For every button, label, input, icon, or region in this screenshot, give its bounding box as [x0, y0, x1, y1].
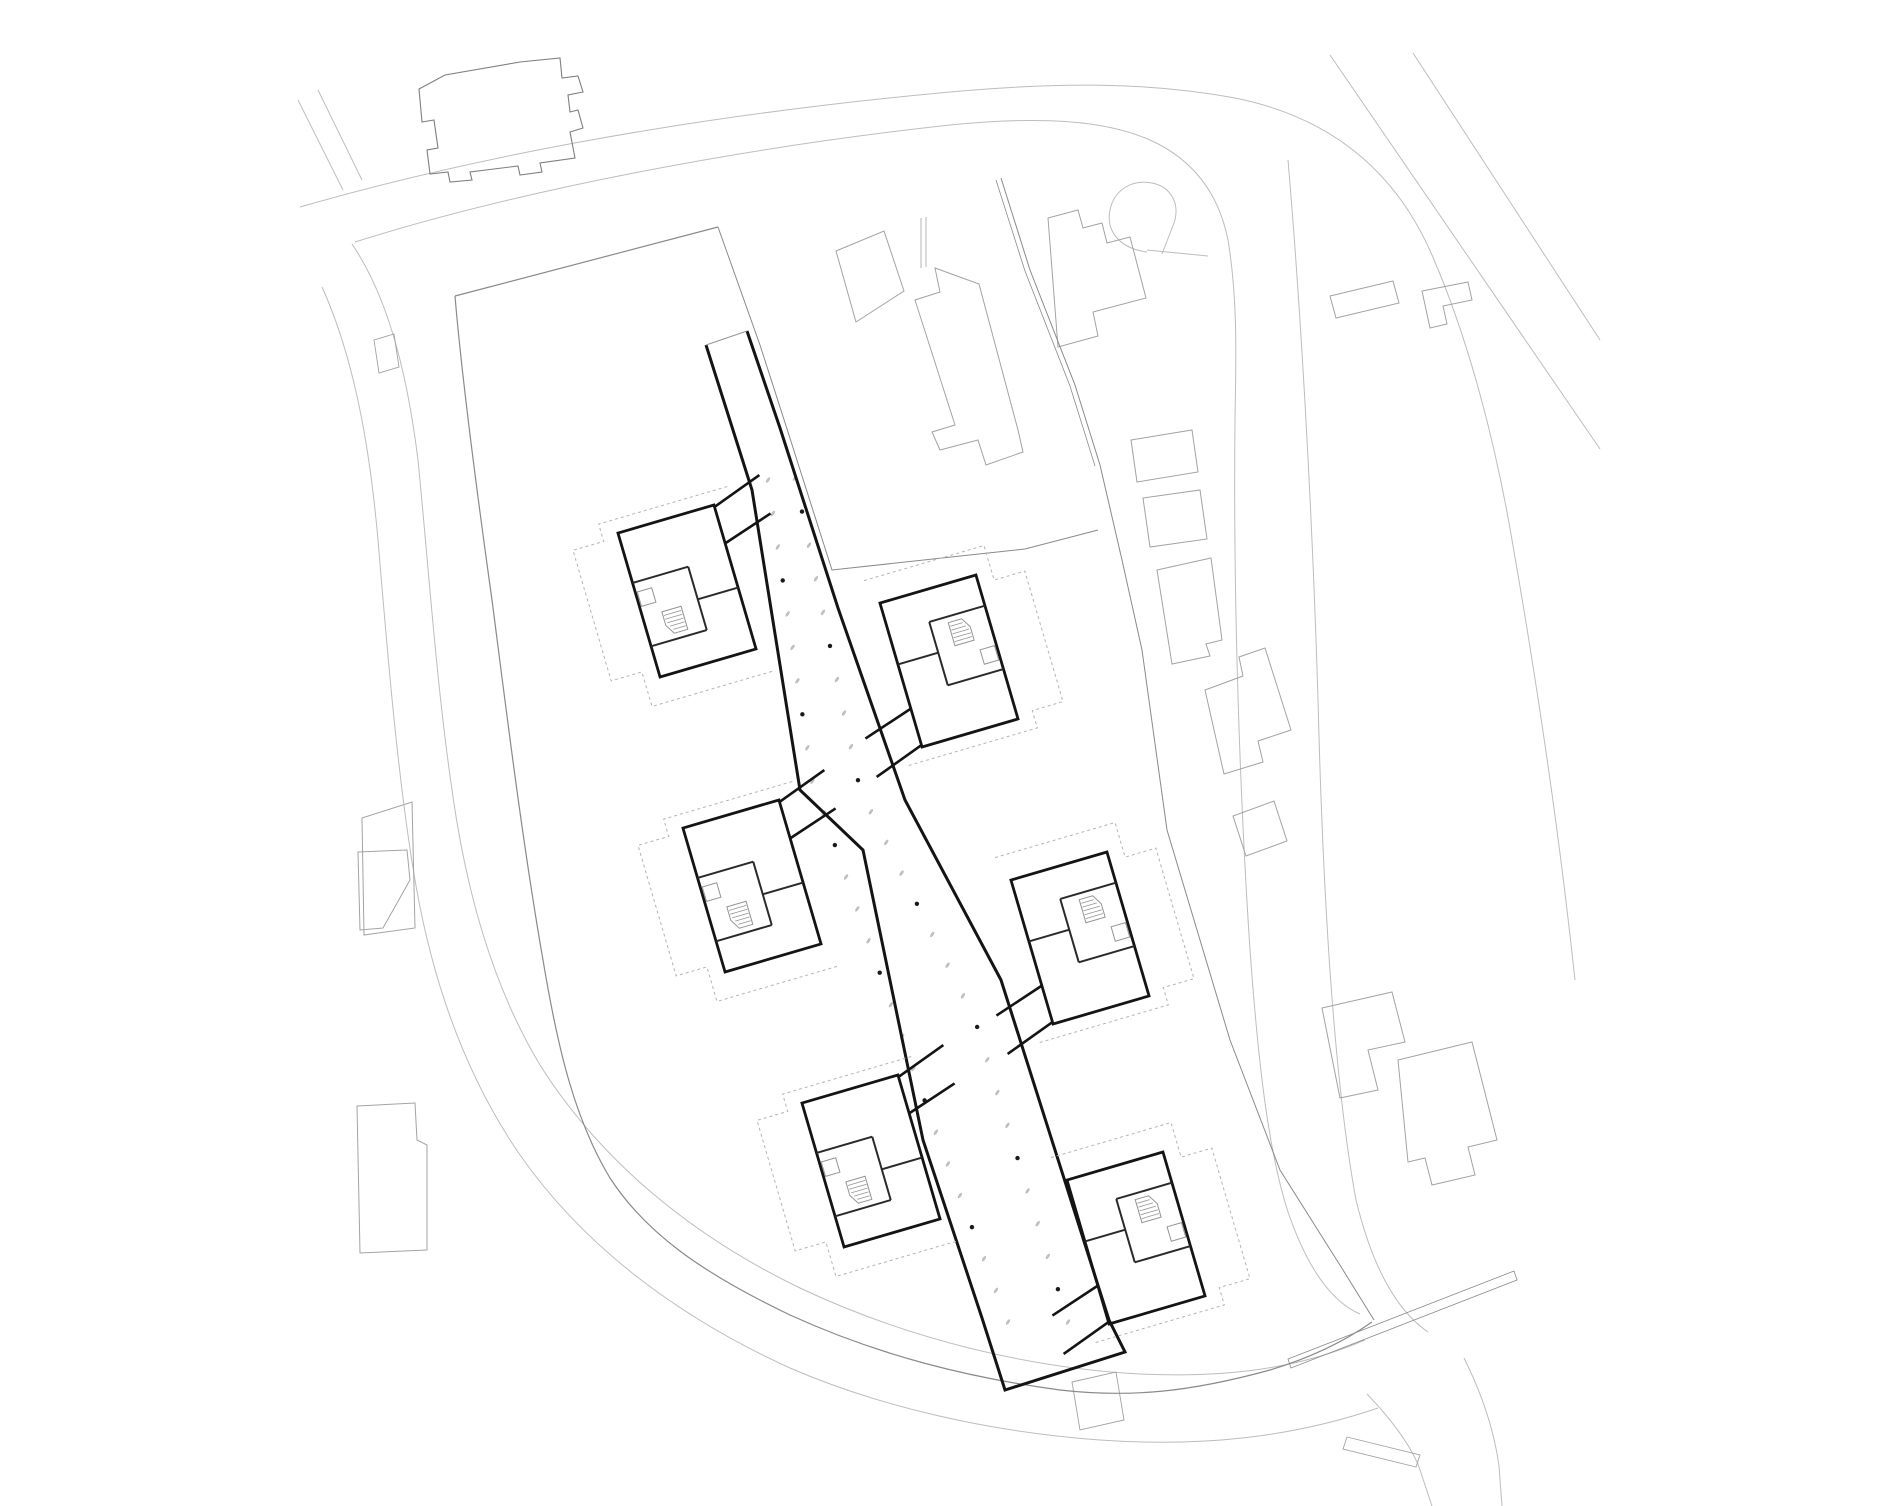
- column-dot-dark: [878, 971, 882, 975]
- site-plan-svg: [0, 0, 1880, 1506]
- column-dot-dark: [1056, 1287, 1060, 1291]
- column-dot-dark: [781, 578, 785, 582]
- column-dot-dark: [833, 843, 837, 847]
- column-dot-dark: [1015, 1156, 1019, 1160]
- plan-background: [0, 0, 1880, 1506]
- column-dot-dark: [800, 712, 804, 716]
- column-dot-dark: [800, 509, 804, 513]
- site-plan: [0, 0, 1880, 1506]
- column-dot-dark: [828, 644, 832, 648]
- column-dot-dark: [915, 902, 919, 906]
- column-dot-dark: [856, 778, 860, 782]
- column-dot-dark: [975, 1025, 979, 1029]
- column-dot-dark: [970, 1225, 974, 1229]
